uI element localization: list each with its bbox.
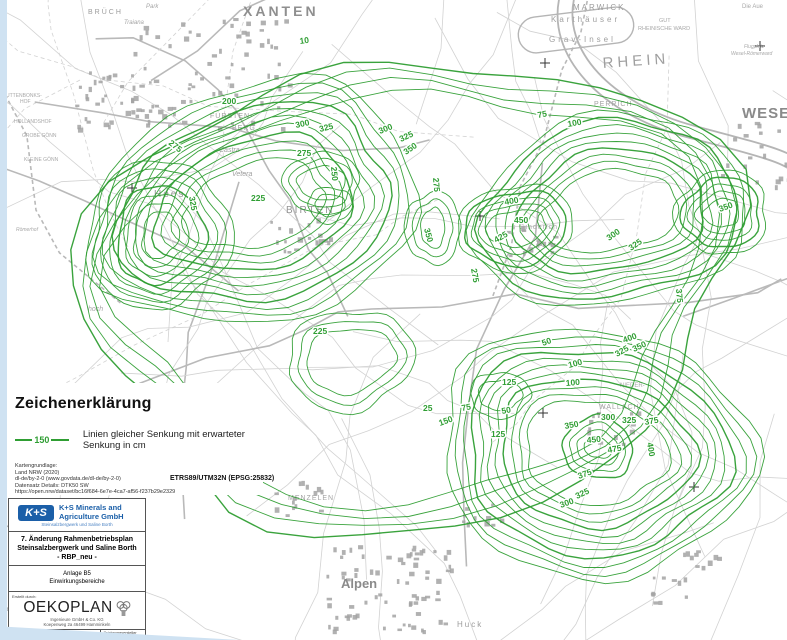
contour-value-label: 50 bbox=[501, 404, 512, 416]
place-label: HOLLANDSHOF bbox=[14, 119, 52, 125]
project-title: 7. Änderung Rahmenbetriebsplan Steinsalz… bbox=[9, 532, 145, 566]
place-label: Traiana bbox=[124, 20, 145, 26]
place-label: HOF bbox=[20, 99, 31, 105]
contour-value-label: 100 bbox=[567, 117, 583, 129]
place-label: RHEIN bbox=[602, 50, 670, 72]
contour-value-label: 225 bbox=[313, 326, 327, 336]
place-label: Alpen bbox=[341, 576, 377, 591]
contour-value-label: 325 bbox=[187, 196, 199, 212]
contour-value-label: 275 bbox=[431, 177, 442, 192]
place-label: hoch bbox=[88, 306, 103, 313]
place-label: Grav-Insel bbox=[549, 35, 616, 44]
legend-box: Zeichenerklärung 150 Linien gleicher Sen… bbox=[7, 383, 263, 495]
contour-value-label: 300 bbox=[604, 226, 622, 242]
contour-value-label: 375 bbox=[674, 288, 685, 303]
contour-value-label: 300 bbox=[558, 496, 575, 510]
contour-value-label: 150 bbox=[437, 414, 454, 428]
place-label: Park bbox=[146, 4, 159, 10]
contour-sample-value: 150 bbox=[34, 435, 49, 445]
contour-value-label: 125 bbox=[502, 377, 516, 387]
contour-value-label: 325 bbox=[318, 121, 334, 134]
contour-value-label: 100 bbox=[565, 377, 580, 388]
contour-value-label: 10 bbox=[299, 35, 310, 46]
map-viewer: XANTENMARWICKBRÜCHParkTraianaKarthäuserG… bbox=[0, 0, 787, 640]
place-label: RHEINISCHE WARD bbox=[638, 26, 690, 32]
place-label: Huck bbox=[457, 620, 483, 629]
contour-line-sample bbox=[51, 439, 68, 441]
place-label: Castra bbox=[219, 147, 240, 154]
oekoplan-tree-icon bbox=[116, 600, 131, 617]
place-label: GROBE GÖNN bbox=[22, 132, 57, 139]
place-label: BRÜCH bbox=[88, 8, 123, 16]
contour-value-label: 100 bbox=[567, 357, 584, 370]
contour-value-label: 325 bbox=[622, 415, 636, 425]
subsidence-contour bbox=[307, 330, 398, 396]
contour-value-label: 350 bbox=[564, 419, 580, 431]
contour-value-label: 450 bbox=[586, 434, 601, 445]
crs-label: ETRS89/UTM32N (EPSG:25832) bbox=[170, 475, 274, 482]
place-label: MENZELEN bbox=[288, 495, 334, 502]
place-label: KLEINE GÖNN bbox=[24, 156, 59, 163]
company-subtitle: Steinsalzbergwerk und Saline Borth bbox=[12, 522, 142, 529]
contour-value-label: 125 bbox=[491, 429, 505, 439]
contour-value-label: 300 bbox=[294, 117, 310, 130]
contour-value-label: 225 bbox=[251, 193, 265, 203]
place-label: GUT bbox=[659, 18, 671, 24]
legend-entry: 150 Linien gleicher Senkung mit erwartet… bbox=[15, 429, 263, 451]
contour-value-label: 400 bbox=[645, 442, 657, 458]
legend-title: Zeichenerklärung bbox=[15, 395, 263, 413]
place-label: Flugplatz bbox=[744, 44, 765, 50]
contour-value-label: 300 bbox=[601, 412, 615, 422]
contour-value-label: 475 bbox=[607, 443, 623, 455]
title-block-company: K+S K+S Minerals and Agriculture GmbH St… bbox=[9, 499, 145, 532]
contour-value-label: 25 bbox=[423, 403, 433, 413]
place-label: Römerhof bbox=[16, 227, 39, 233]
place-label: MARWICK bbox=[573, 3, 626, 12]
title-block: K+S K+S Minerals and Agriculture GmbH St… bbox=[8, 498, 146, 640]
subsidence-contour bbox=[181, 158, 326, 249]
company-name: K+S Minerals and Agriculture GmbH bbox=[59, 504, 124, 521]
contour-value-label: 350 bbox=[717, 200, 734, 214]
annex-label: Anlage B5 Einwirkungsbereiche bbox=[9, 566, 145, 592]
contour-value-label: 50 bbox=[540, 335, 553, 348]
place-label: Wesel-Römerward bbox=[731, 51, 773, 57]
ks-logo: K+S bbox=[18, 505, 54, 521]
legend-description: Linien gleicher Senkung mit erwarteter S… bbox=[83, 429, 263, 451]
contour-value-label: 275 bbox=[469, 268, 481, 284]
contour-value-label: 325 bbox=[574, 486, 591, 501]
contour-value-label: 75 bbox=[537, 108, 548, 120]
place-label: Vetera bbox=[232, 171, 252, 178]
place-label: XANTEN bbox=[243, 3, 319, 19]
contractor-block: Erstellt durch: OEKOPLAN Ingenieure GmbH… bbox=[9, 592, 145, 629]
contour-value-label: 275 bbox=[297, 148, 311, 158]
contour-value-label: 325 bbox=[626, 236, 644, 252]
contour-value-label: 250 bbox=[329, 166, 340, 181]
contour-line-sample bbox=[15, 439, 32, 441]
contour-value-label: 325 bbox=[613, 343, 631, 359]
contractor-address: Ingenieure GmbH & Co. KG Koepenweg 2a 46… bbox=[12, 617, 142, 627]
source-line: https://open.nrw/dataset/bc16f684-6e7e-4… bbox=[15, 489, 263, 496]
contractor-name: OEKOPLAN bbox=[23, 599, 112, 617]
place-label: Karthäuser bbox=[551, 15, 620, 24]
place-label: WESEL bbox=[742, 105, 787, 122]
contour-value-label: 450 bbox=[514, 215, 528, 225]
contour-value-label: 200 bbox=[222, 96, 236, 106]
contour-value-label: 75 bbox=[461, 401, 472, 413]
subsidence-contour bbox=[92, 161, 234, 310]
place-label: Die Aue bbox=[742, 4, 764, 10]
